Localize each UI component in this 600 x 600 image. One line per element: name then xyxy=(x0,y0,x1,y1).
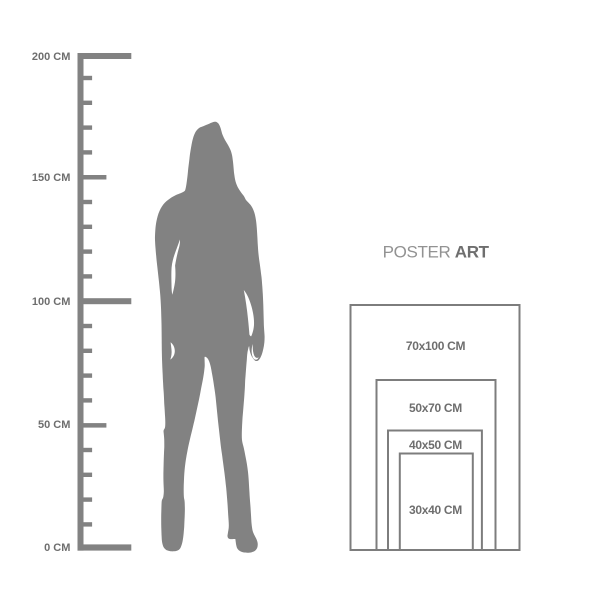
svg-text:150 CM: 150 CM xyxy=(32,172,71,184)
svg-text:70x100 CM: 70x100 CM xyxy=(406,339,466,353)
svg-text:0 CM: 0 CM xyxy=(44,542,70,554)
svg-text:200 CM: 200 CM xyxy=(32,51,71,63)
svg-text:POSTER ART: POSTER ART xyxy=(383,243,490,262)
svg-text:100 CM: 100 CM xyxy=(32,296,71,308)
svg-text:50x70 CM: 50x70 CM xyxy=(409,401,462,415)
svg-text:40x50 CM: 40x50 CM xyxy=(409,438,462,452)
svg-text:50 CM: 50 CM xyxy=(38,419,70,431)
svg-text:30x40 CM: 30x40 CM xyxy=(409,503,462,517)
